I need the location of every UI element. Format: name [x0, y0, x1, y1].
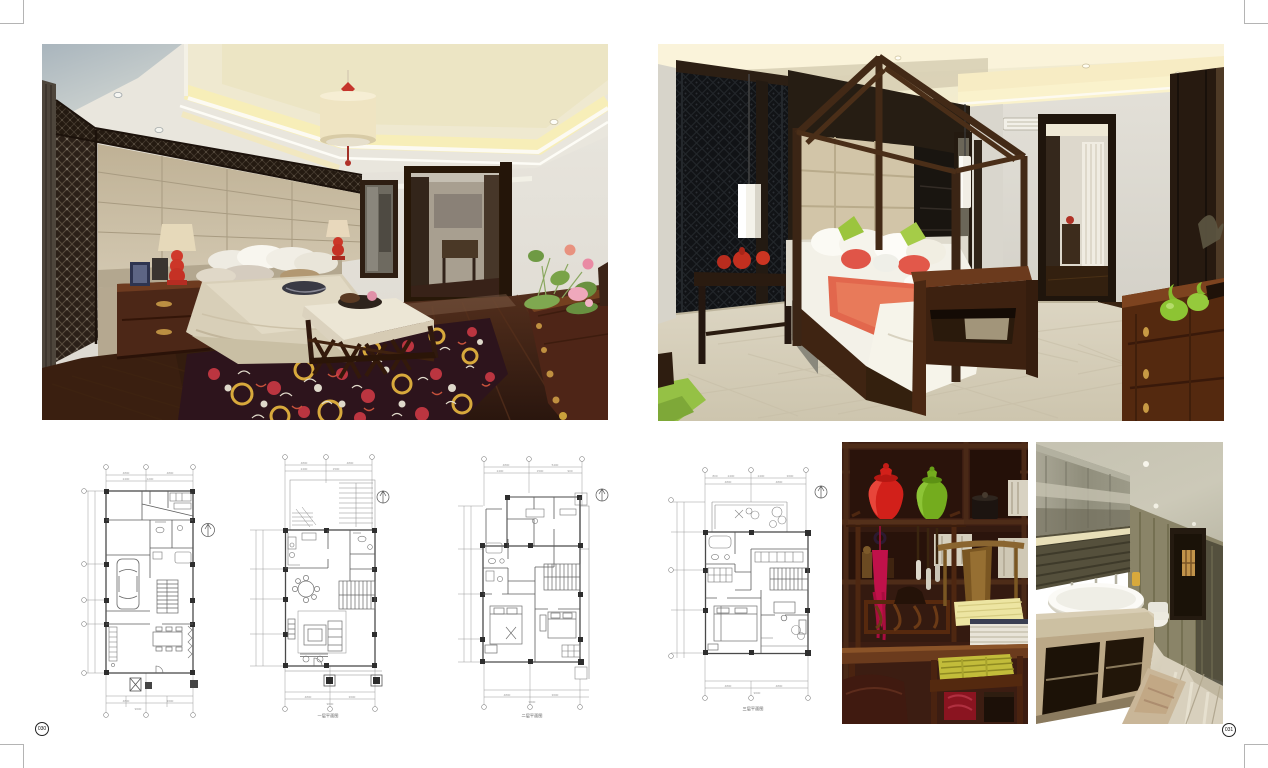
svg-text:2400: 2400 [728, 474, 735, 478]
svg-text:3600: 3600 [552, 693, 559, 697]
svg-text:3600: 3600 [787, 474, 794, 478]
svg-text:4800: 4800 [305, 695, 312, 699]
svg-text:9600: 9600 [327, 702, 334, 706]
svg-text:4800: 4800 [123, 699, 130, 703]
svg-text:二层平面图: 二层平面图 [522, 713, 543, 719]
svg-text:800: 800 [712, 474, 717, 478]
svg-text:2400: 2400 [123, 477, 130, 481]
svg-text:3600: 3600 [167, 699, 174, 703]
svg-text:4800: 4800 [123, 471, 130, 475]
svg-text:4800: 4800 [504, 693, 511, 697]
svg-text:1500: 1500 [333, 467, 340, 471]
svg-text:4800: 4800 [347, 461, 354, 465]
svg-text:5400: 5400 [552, 463, 559, 467]
svg-text:4800: 4800 [725, 684, 732, 688]
svg-text:1500: 1500 [537, 469, 544, 473]
svg-text:4800: 4800 [725, 480, 732, 484]
svg-text:1200: 1200 [147, 477, 154, 481]
svg-text:一层平面图: 一层平面图 [318, 713, 339, 719]
svg-text:2400: 2400 [497, 469, 504, 473]
svg-text:9600: 9600 [529, 700, 536, 704]
svg-text:9600: 9600 [135, 707, 142, 711]
svg-text:4800: 4800 [776, 480, 783, 484]
svg-text:4800: 4800 [776, 684, 783, 688]
svg-text:2400: 2400 [758, 474, 765, 478]
svg-text:三层平面图: 三层平面图 [743, 706, 764, 712]
svg-text:900: 900 [567, 469, 572, 473]
svg-text:9600: 9600 [754, 691, 761, 695]
svg-text:4800: 4800 [503, 463, 510, 467]
svg-text:2400: 2400 [301, 467, 308, 471]
svg-text:3600: 3600 [349, 695, 356, 699]
svg-text:4800: 4800 [301, 461, 308, 465]
svg-text:4800: 4800 [167, 471, 174, 475]
